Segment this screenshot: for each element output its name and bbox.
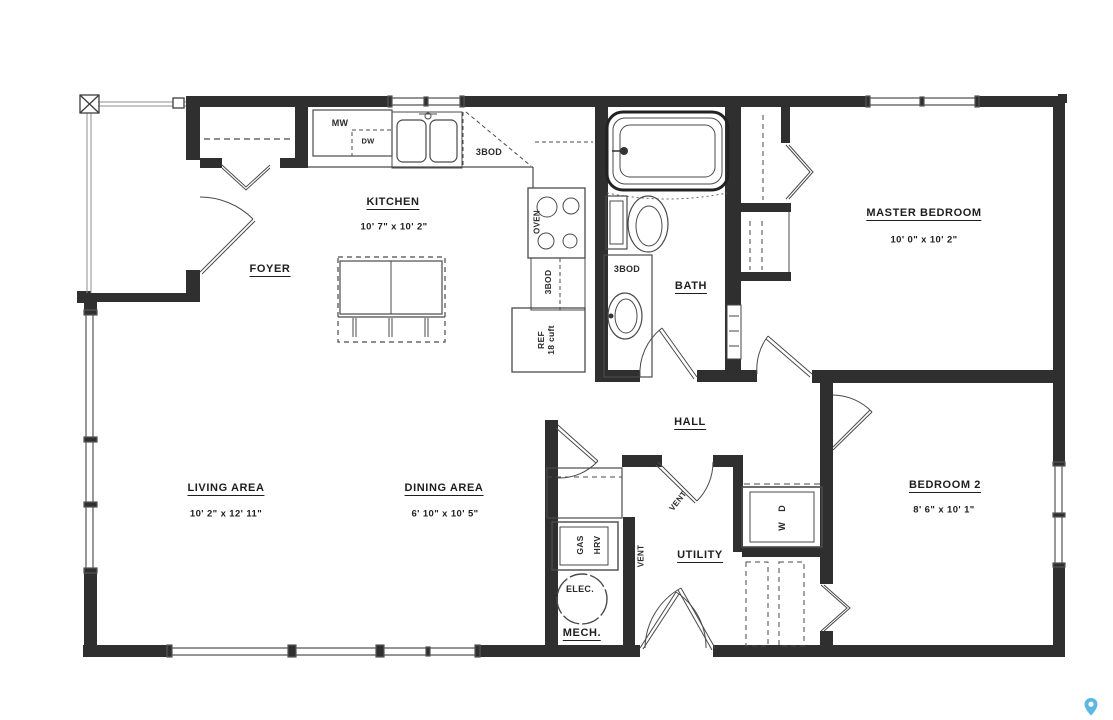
linen-closet [750, 212, 789, 272]
room-label-kitchen: KITCHEN [366, 196, 419, 210]
wall-niche [727, 305, 741, 359]
toilet [606, 196, 668, 252]
room-label-bedroom-2: BEDROOM 2 [909, 479, 981, 493]
room-dims-kitchen: 10' 7" x 10' 2" [360, 222, 427, 233]
pantry-cabinet [531, 258, 585, 310]
mech-exterior-doors [640, 588, 715, 650]
electrical-panel [557, 574, 607, 624]
bath-door [640, 328, 697, 379]
room-label-hall: HALL [674, 416, 706, 430]
floor-plan-page: KITCHEN 10' 7" x 10' 2" FOYER MASTER BED… [0, 0, 1113, 720]
kitchen-island [338, 257, 445, 342]
room-label-foyer: FOYER [250, 263, 291, 277]
map-pin-icon [1082, 697, 1100, 717]
room-dims-bedroom-2: 8' 6" x 10' 1" [913, 505, 974, 516]
furnace-hrv-unit [552, 522, 618, 570]
kitchen-counter [308, 112, 593, 188]
label-dishwasher: DW [361, 137, 374, 146]
bathtub [607, 112, 728, 199]
label-ref-line2: 18 cuft [547, 325, 557, 355]
label-gas: GAS [575, 535, 585, 554]
master-bedroom-door [757, 336, 812, 377]
room-label-living-area: LIVING AREA [187, 482, 264, 496]
label-counter-3bod: 3BOD [476, 147, 502, 157]
entry-door [200, 197, 255, 274]
label-hrv: HRV [592, 536, 602, 555]
room-label-utility: UTILITY [677, 549, 723, 563]
microwave [313, 110, 392, 156]
hall-closet [547, 468, 622, 518]
kitchen-sink [392, 112, 462, 168]
label-refrigerator: REF 18 cuft [537, 325, 557, 355]
label-microwave: MW [332, 118, 349, 128]
mech-closet-door [556, 425, 598, 478]
label-vanity-3bod: 3BOD [614, 264, 640, 274]
bedroom2-closet-door [821, 585, 850, 631]
porch-post-icon [80, 95, 184, 113]
label-washer-dryer: W D [777, 501, 787, 531]
room-dims-living-area: 10' 2" x 12' 11" [190, 509, 262, 520]
label-pantry-3bod: 3BOD [543, 270, 553, 295]
room-label-bath: BATH [675, 280, 707, 294]
room-label-dining-area: DINING AREA [405, 482, 484, 496]
room-dims-dining-area: 6' 10" x 10' 5" [411, 509, 478, 520]
floor-plan-drawing [0, 0, 1113, 720]
label-vent-mech: VENT [637, 545, 646, 568]
utility-shelving [746, 562, 804, 646]
room-label-mech: MECH. [563, 627, 601, 641]
label-oven: OVEN [533, 210, 542, 234]
room-dims-master-bedroom: 10' 0" x 10' 2" [890, 235, 957, 246]
label-electrical: ELEC. [566, 584, 594, 594]
room-label-master-bedroom: MASTER BEDROOM [866, 207, 981, 221]
bedroom2-door [833, 395, 872, 450]
entry-porch [87, 102, 186, 293]
